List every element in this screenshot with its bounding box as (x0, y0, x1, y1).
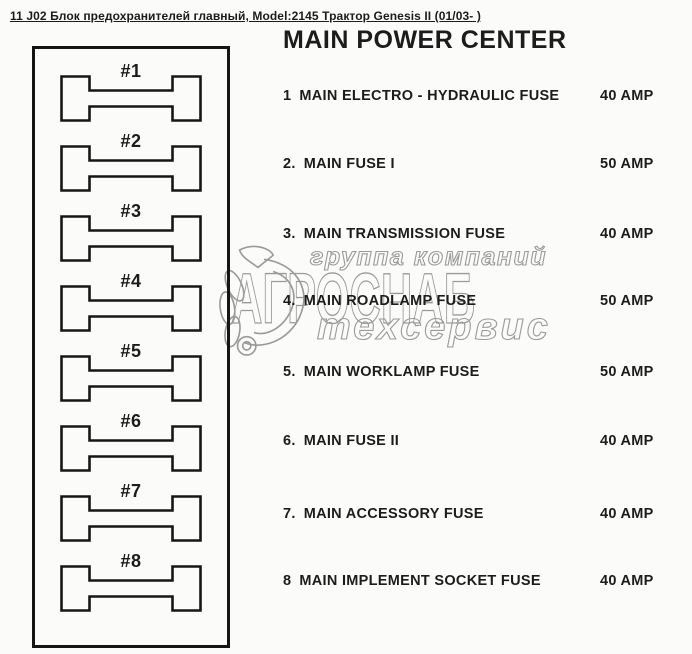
fuse-rating: 40 AMP (600, 506, 654, 522)
fuse-1-shape: #1 (60, 75, 202, 122)
fuse-rating: 50 AMP (600, 364, 654, 380)
fuse-number: 2. (283, 156, 296, 172)
fuse-rating: 50 AMP (600, 156, 654, 172)
fuse-rating: 40 AMP (600, 573, 654, 589)
fuse-outline-icon (60, 215, 202, 262)
fuse-outline-icon (60, 285, 202, 332)
fuse-outline-icon (60, 355, 202, 402)
fuse-name: MAIN ROADLAMP FUSE (304, 293, 477, 309)
fuse-outline-icon (60, 75, 202, 122)
fuse-7-shape: #7 (60, 495, 202, 542)
fuse-outline-icon (60, 565, 202, 612)
fuse-name: MAIN ACCESSORY FUSE (304, 506, 484, 522)
fuse-3-label: #3 (120, 202, 141, 220)
fuse-list-row: 6.MAIN FUSE II 40 AMP (283, 433, 681, 453)
fuse-outline-icon (60, 145, 202, 192)
fuse-number: 5. (283, 364, 296, 380)
fuse-number: 6. (283, 433, 296, 449)
fuse-outline-icon (60, 495, 202, 542)
fuse-number: 3. (283, 226, 296, 242)
fuse-2-label: #2 (120, 132, 141, 150)
fuse-5-label: #5 (120, 342, 141, 360)
fuse-7-label: #7 (120, 482, 141, 500)
fuse-name: MAIN ELECTRO - HYDRAULIC FUSE (299, 88, 559, 104)
fuse-8-shape: #8 (60, 565, 202, 612)
fuse-4-shape: #4 (60, 285, 202, 332)
fuse-number: 4. (283, 293, 296, 309)
fuse-2-shape: #2 (60, 145, 202, 192)
fuse-rating: 40 AMP (600, 88, 654, 104)
fuse-list-row: 1MAIN ELECTRO - HYDRAULIC FUSE 40 AMP (283, 88, 681, 108)
fuse-name: MAIN TRANSMISSION FUSE (304, 226, 506, 242)
fuse-name: MAIN IMPLEMENT SOCKET FUSE (299, 573, 540, 589)
fuse-list-row: 3.MAIN TRANSMISSION FUSE 40 AMP (283, 226, 681, 246)
fuse-8-label: #8 (120, 552, 141, 570)
fuse-list-row: 8MAIN IMPLEMENT SOCKET FUSE 40 AMP (283, 573, 681, 593)
fuse-outline-icon (60, 425, 202, 472)
fuse-number: 8 (283, 573, 291, 589)
fuse-list-row: 4.MAIN ROADLAMP FUSE 50 AMP (283, 293, 681, 313)
fuse-rating: 50 AMP (600, 293, 654, 309)
fuse-name: MAIN FUSE II (304, 433, 399, 449)
fuse-list: 1MAIN ELECTRO - HYDRAULIC FUSE 40 AMP 2.… (283, 0, 681, 654)
fuse-name: MAIN FUSE I (304, 156, 395, 172)
fuse-number: 7. (283, 506, 296, 522)
fuse-rating: 40 AMP (600, 433, 654, 449)
fuse-list-row: 2.MAIN FUSE I 50 AMP (283, 156, 681, 176)
fuse-list-row: 5.MAIN WORKLAMP FUSE 50 AMP (283, 364, 681, 384)
fuse-5-shape: #5 (60, 355, 202, 402)
fuse-1-label: #1 (120, 62, 141, 80)
fuse-6-shape: #6 (60, 425, 202, 472)
fuse-list-row: 7.MAIN ACCESSORY FUSE 40 AMP (283, 506, 681, 526)
fuse-name: MAIN WORKLAMP FUSE (304, 364, 480, 380)
fuse-6-label: #6 (120, 412, 141, 430)
fuse-3-shape: #3 (60, 215, 202, 262)
fuse-number: 1 (283, 88, 291, 104)
fuse-4-label: #4 (120, 272, 141, 290)
fuse-rating: 40 AMP (600, 226, 654, 242)
catalog-page: 11 J02 Блок предохранителей главный, Mod… (0, 0, 692, 654)
fuse-box-diagram: #1 #2 #3 #4 #5 #6 #7 #8 (32, 46, 230, 648)
